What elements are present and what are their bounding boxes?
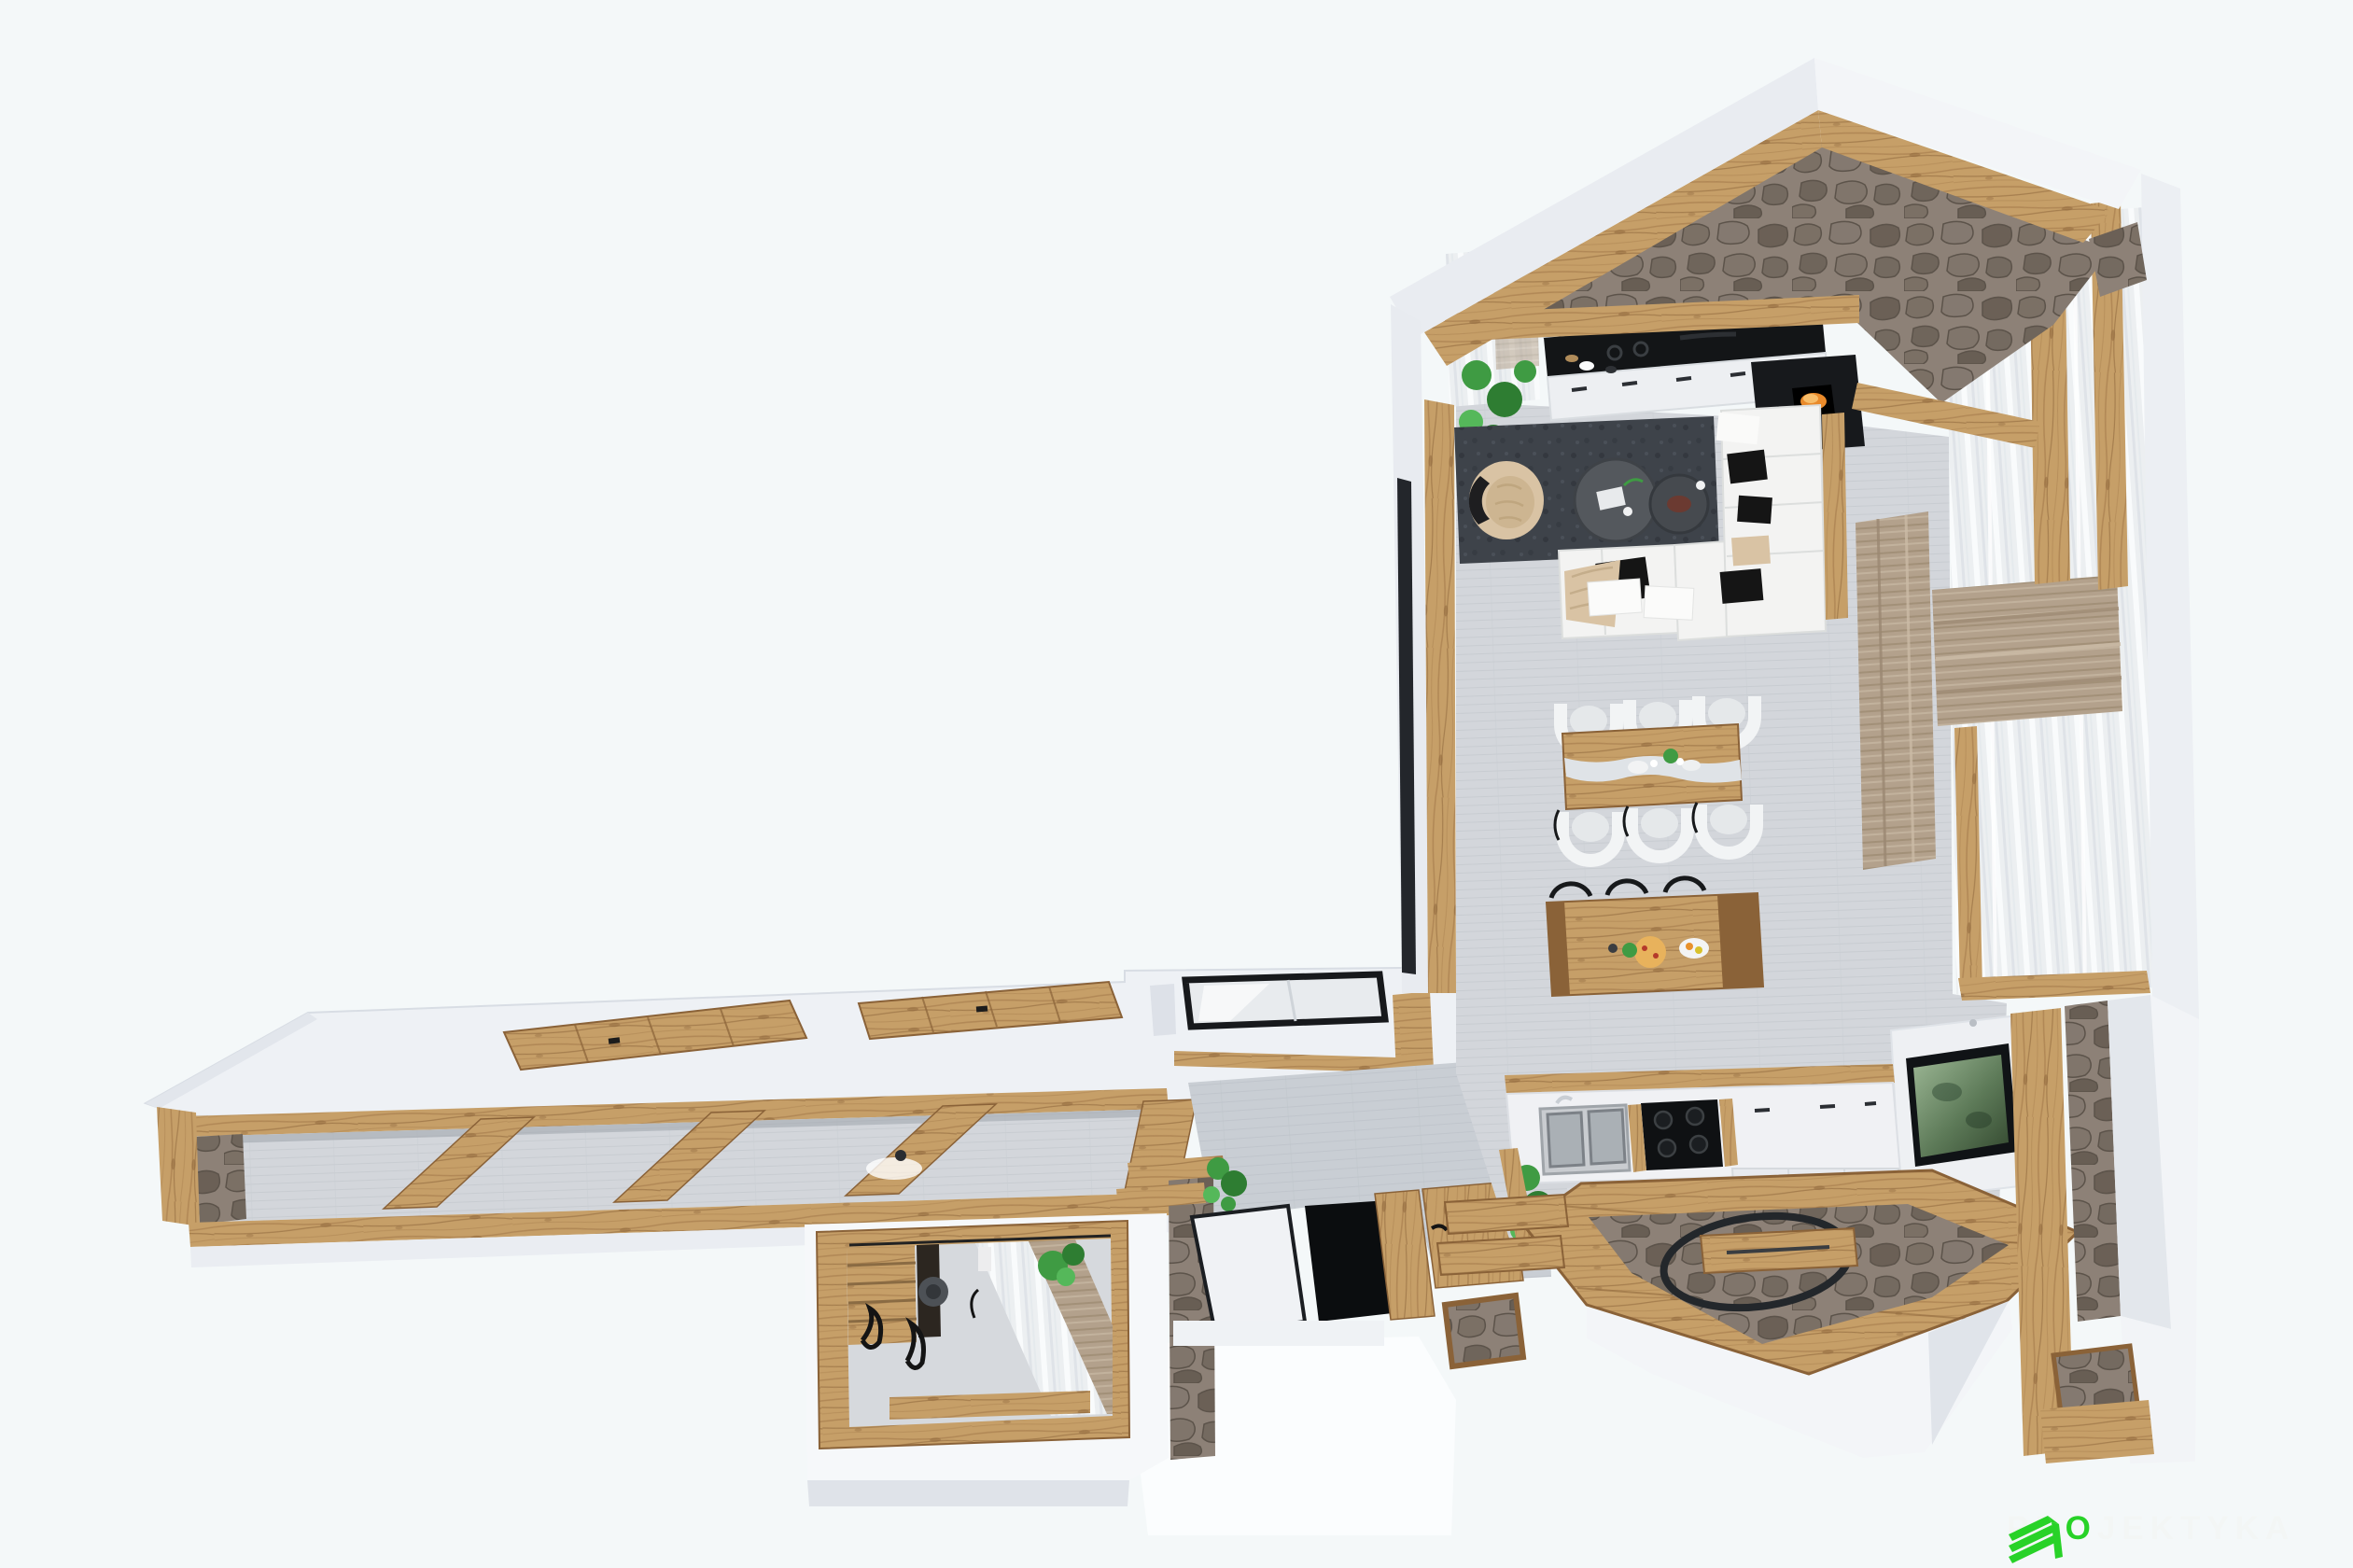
- fruit: [1695, 946, 1702, 954]
- island-side-panel-right: [1717, 893, 1763, 988]
- annex-room: [805, 1213, 1169, 1506]
- black-induction-hob: [1641, 1099, 1723, 1170]
- fire-flame-core: [1803, 394, 1818, 403]
- skylight-glass-panel: [1185, 974, 1385, 1027]
- projektyka-logo-icon: [2007, 1510, 2072, 1564]
- hatch-handle: [976, 1005, 987, 1012]
- fruit-bowl: [1679, 938, 1709, 959]
- artwork-leaf: [1932, 1083, 1962, 1101]
- white-sill-band: [1173, 1321, 1384, 1346]
- timber-dining-table: [1562, 724, 1742, 809]
- beige-tufted-armchair: [1469, 461, 1544, 539]
- double-sink: [1540, 1098, 1630, 1174]
- timber-wall-post: [1424, 399, 1456, 993]
- plate: [1628, 761, 1648, 774]
- timber-console: [1822, 413, 1848, 620]
- slab-notch-shade: [1150, 984, 1176, 1036]
- round-coffee-table-small: [1650, 475, 1708, 533]
- annex-grey-slab: [807, 1480, 1129, 1506]
- glass: [1650, 760, 1658, 767]
- black-pillow: [1727, 450, 1768, 484]
- fruit: [1686, 943, 1693, 950]
- portal-timber-step: [2040, 1400, 2154, 1463]
- seat-cushion: [1644, 586, 1694, 621]
- cup: [1623, 507, 1632, 516]
- cup: [1696, 481, 1705, 490]
- black-pillow: [1737, 496, 1772, 524]
- white-pillow: [1716, 413, 1760, 444]
- tv-green-artwork: [1913, 1055, 2009, 1157]
- bottle: [1608, 944, 1618, 953]
- plate: [1682, 760, 1701, 771]
- watermark: PROJEKTYKA: [2007, 1510, 2295, 1547]
- centerpiece-plant: [1663, 749, 1678, 763]
- round-coffee-table-large: [1575, 459, 1657, 541]
- stone-step-landing: [1445, 1295, 1523, 1366]
- pizza-topping: [1653, 953, 1659, 959]
- pizza-topping: [1642, 945, 1647, 951]
- timber-entry-portal: [2010, 995, 2199, 1463]
- floor-plan-render: PROJEKTYKA: [0, 0, 2353, 1568]
- bowl: [1579, 361, 1594, 371]
- island-plant: [1622, 943, 1637, 958]
- beige-pillow: [1731, 536, 1771, 567]
- pizza: [1634, 936, 1666, 968]
- floor-plan-canvas: [0, 0, 2353, 1568]
- stone-end-wall: [196, 1134, 246, 1225]
- speaker-cone: [926, 1284, 941, 1299]
- decor-bowl: [1667, 496, 1691, 512]
- black-pillow: [1720, 568, 1764, 604]
- wood-bowl: [1565, 355, 1578, 362]
- end-timber-post: [157, 1107, 200, 1226]
- seat-cushion: [1588, 579, 1642, 616]
- white-vase: [978, 1247, 991, 1271]
- artwork-leaf: [1966, 1112, 1992, 1128]
- dark-dish: [1605, 366, 1617, 373]
- taupe-drape-vertical: [1856, 511, 1936, 870]
- door-handle: [1969, 1019, 1977, 1027]
